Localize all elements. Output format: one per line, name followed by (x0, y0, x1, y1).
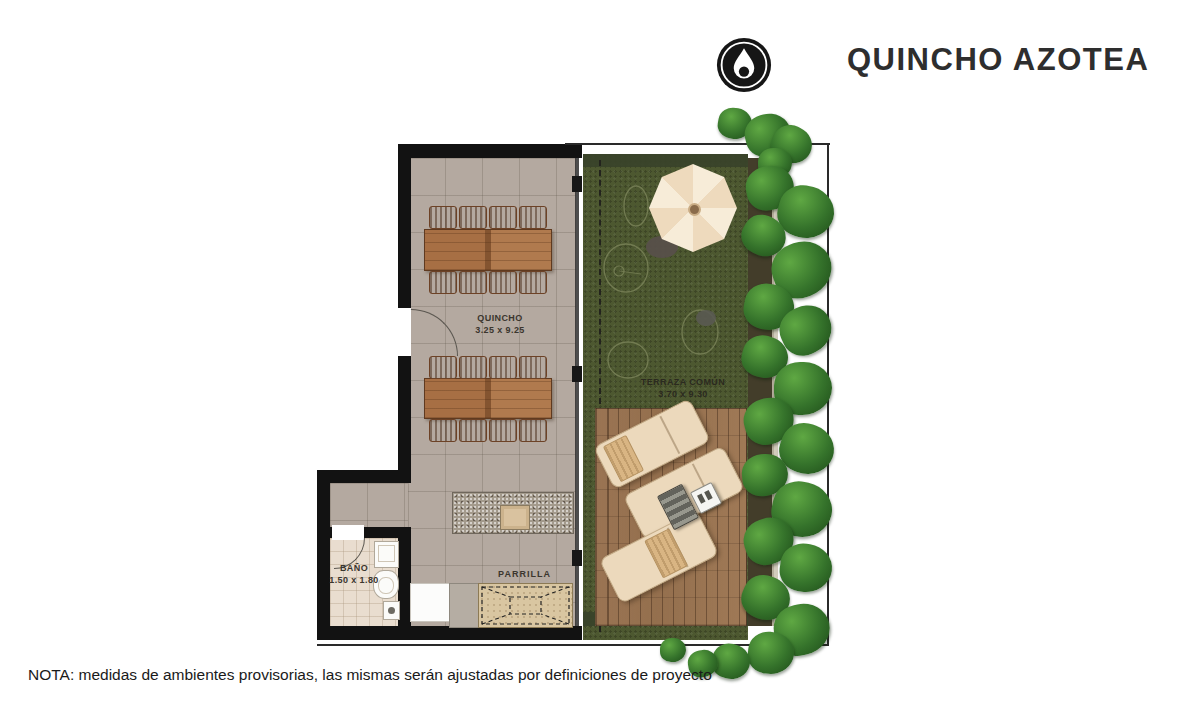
bano-label: BAÑO 1.50 x 1.80 (322, 563, 386, 586)
chair (459, 271, 487, 294)
terraza-name: TERRAZA COMÚN (623, 377, 743, 389)
chair (459, 419, 487, 442)
parrilla-projection-lines (479, 584, 572, 627)
chair (429, 271, 457, 294)
drop-in-circle-icon (716, 37, 772, 93)
glass-wall-post (572, 176, 582, 192)
wall-left-lower (317, 470, 330, 640)
quincho-label: QUINCHO 3.25 x 9.25 (450, 313, 550, 336)
island-sink (500, 505, 530, 530)
wall-step (317, 470, 411, 483)
page-title: QUINCHO AZOTEA (847, 42, 1149, 78)
chair (429, 206, 457, 229)
lounger-towel (644, 529, 688, 579)
chair (429, 419, 457, 442)
chair (519, 419, 547, 442)
footer-note: NOTA: medidas de ambientes provisorias, … (28, 666, 712, 684)
parrilla-name: PARRILLA (478, 569, 571, 581)
dining-table-2 (424, 378, 552, 419)
door-opening (398, 308, 411, 356)
lounger-towel (603, 435, 644, 482)
sink-basin (378, 545, 395, 562)
chair (459, 356, 487, 379)
chair (459, 206, 487, 229)
bano-size: 1.50 x 1.80 (322, 575, 386, 587)
cabinet-module (449, 583, 480, 628)
parrilla-grill (478, 583, 573, 628)
counter-module (410, 583, 450, 622)
chair (489, 419, 517, 442)
parrilla-label: PARRILLA (478, 569, 571, 581)
chair (519, 206, 547, 229)
bin-dot (388, 607, 395, 614)
quincho-name: QUINCHO (450, 313, 550, 325)
bathroom-bin (383, 601, 400, 620)
terraza-label: TERRAZA COMÚN 3.70 x 9.30 (623, 377, 743, 400)
glass-wall-post (572, 550, 582, 566)
umbrella-pole (688, 203, 701, 216)
chair (489, 206, 517, 229)
terraza-size: 3.70 x 9.30 (623, 389, 743, 401)
wall-top (398, 144, 582, 158)
bano-name: BAÑO (322, 563, 386, 575)
chair (489, 356, 517, 379)
chair (429, 356, 457, 379)
glass-wall-post (572, 366, 582, 382)
chair (519, 356, 547, 379)
floor-plan-canvas: QUINCHO 3.25 x 9.25 TERRAZA COMÚN 3.70 x… (0, 0, 1200, 704)
lounger-seam (660, 416, 681, 454)
plant-foliage (660, 638, 686, 662)
logo (716, 37, 772, 93)
chair (489, 271, 517, 294)
dining-table-1 (424, 229, 552, 271)
chair (519, 271, 547, 294)
quincho-size: 3.25 x 9.25 (450, 325, 550, 337)
